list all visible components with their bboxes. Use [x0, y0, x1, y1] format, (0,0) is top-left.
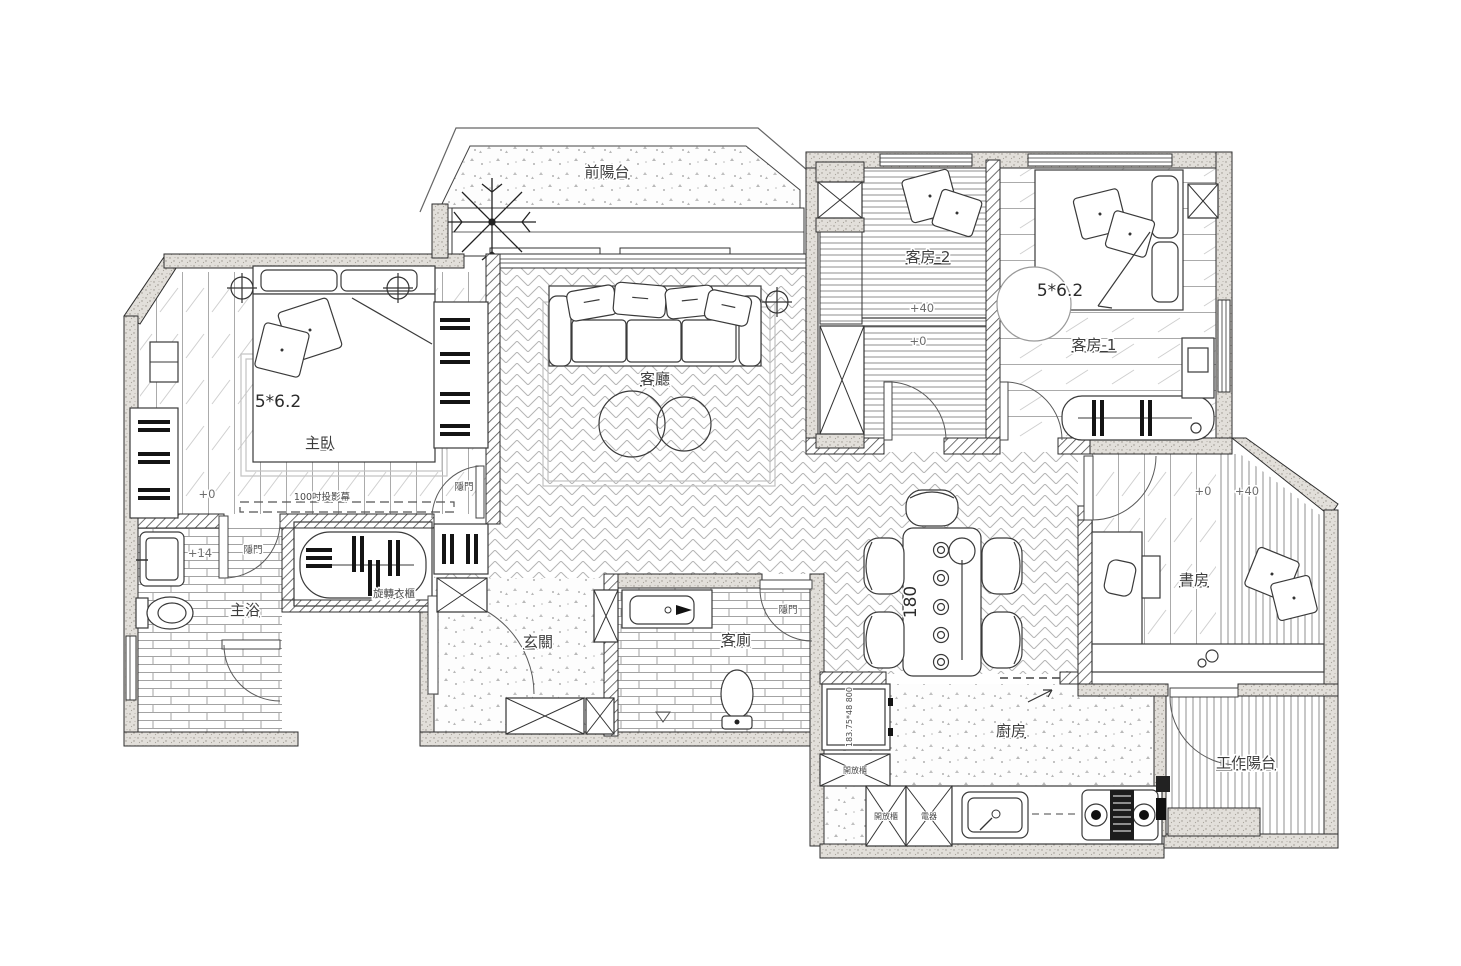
label-appliances: 電器: [921, 812, 937, 821]
guest2-north-window: [880, 154, 972, 166]
sofa: [549, 282, 761, 366]
level-study-platform: +40: [1235, 484, 1259, 498]
wall-balcony-east: [1324, 688, 1338, 838]
guest1-east-window: [1218, 300, 1230, 392]
label-study: 書房: [1179, 571, 1209, 589]
dim-guest-bed: 5*6.2: [1037, 281, 1083, 301]
entry-cabinet-bottom: [506, 698, 584, 734]
label-entry: 玄關: [523, 633, 553, 651]
living-north-window: [500, 254, 806, 268]
g2-closet-top: [818, 182, 862, 218]
label-kitchen: 廚房: [996, 722, 1026, 740]
label-guest-room-2: 客房-2: [906, 248, 951, 266]
g1-desk: [1182, 338, 1214, 398]
study-side-table: [1142, 556, 1160, 598]
entry-cabinet-top: [437, 578, 487, 612]
master-side-cabinet: [130, 408, 178, 518]
level-guest2-floor: +0: [910, 334, 927, 348]
label-living-room: 客廳: [640, 370, 670, 388]
entry-column: [594, 590, 618, 642]
wall-g2-block-a: [816, 162, 864, 182]
g1-bench: [1062, 396, 1214, 440]
wall-balcony-jamb: [432, 204, 448, 258]
label-hidden-door-bath: 隱門: [243, 544, 262, 556]
floor-plan-drawing: 前陽台 客廳 主臥 主浴 玄關 客廁 廚房 書房 客房-1 客房-2 工作陽台 …: [0, 0, 1461, 966]
wall-kitchen-north-a: [820, 672, 886, 684]
label-hidden-door-master: 隱門: [454, 481, 473, 493]
entry-cabinet-small: [586, 698, 614, 734]
balcony-drain-block: [1156, 776, 1170, 792]
label-front-balcony: 前陽台: [584, 163, 629, 181]
wall-hall-b: [944, 438, 1000, 454]
wall-bay-east: [1324, 510, 1338, 690]
wall-kitchen-north-b: [1060, 672, 1078, 684]
wc-toilet: [721, 670, 753, 729]
label-guest-room-1: 客房-1: [1072, 336, 1117, 354]
front-balcony: [420, 128, 814, 266]
bath-west-window: [126, 636, 136, 700]
level-master: +0: [199, 487, 216, 501]
fridge: [822, 684, 893, 750]
wall-guest2-west: [806, 168, 818, 438]
wall-wc-north: [618, 574, 762, 588]
dim-fridge: 183.75*48 800: [845, 687, 854, 747]
g2-closet-tall: [820, 326, 864, 434]
label-projector-screen: 100吋投影幕: [294, 491, 351, 503]
label-open-cabinet-a: 開放櫃: [843, 765, 867, 775]
kitchen-end-block: [1156, 798, 1166, 820]
label-guest-wc: 客廁: [721, 631, 751, 649]
master-wardrobe: [434, 302, 488, 448]
g1-round-rug: [997, 267, 1071, 341]
wall-balcony-north-a: [1078, 684, 1168, 696]
dim-master-bed: 5*6.2: [255, 392, 301, 412]
wall-south-entry-wc: [420, 732, 820, 746]
label-hidden-door-wc: 隱門: [778, 604, 797, 616]
dim-dining-table: 180: [901, 586, 921, 618]
level-study-floor: +0: [1195, 484, 1212, 498]
label-work-balcony: 工作陽台: [1216, 754, 1276, 772]
wall-bath-east: [282, 528, 294, 608]
balcony-step: [1168, 808, 1260, 836]
wall-g2-block-b: [816, 218, 864, 232]
wall-balcony-north-b: [1238, 684, 1338, 696]
master-bed: [253, 266, 435, 462]
wall-sw-bottom: [124, 732, 298, 746]
g2-side-shelf: [820, 232, 862, 324]
master-lower-closet: [434, 524, 488, 574]
level-bath: +14: [188, 546, 212, 560]
wall-master-south-b: [280, 514, 434, 528]
label-master-bedroom: 主臥: [305, 434, 335, 452]
floor-plan-canvas: 前陽台 客廳 主臥 主浴 玄關 客廁 廚房 書房 客房-1 客房-2 工作陽台 …: [0, 0, 1461, 966]
guest1-north-window: [1028, 154, 1172, 166]
wall-study-west-b: [1078, 520, 1092, 688]
label-open-cabinet-b: 開放櫃: [874, 811, 898, 821]
study-counter: [1092, 644, 1324, 672]
bath-toilet: [136, 597, 193, 629]
balcony-window-band: [452, 208, 804, 258]
wall-g2-block-c: [816, 434, 864, 448]
level-guest2-platform: +40: [910, 301, 934, 315]
label-master-bath: 主浴: [230, 601, 260, 619]
label-rotating-wardrobe: 旋轉衣櫃: [373, 587, 415, 600]
g1-corner-cabinet: [1188, 184, 1218, 218]
